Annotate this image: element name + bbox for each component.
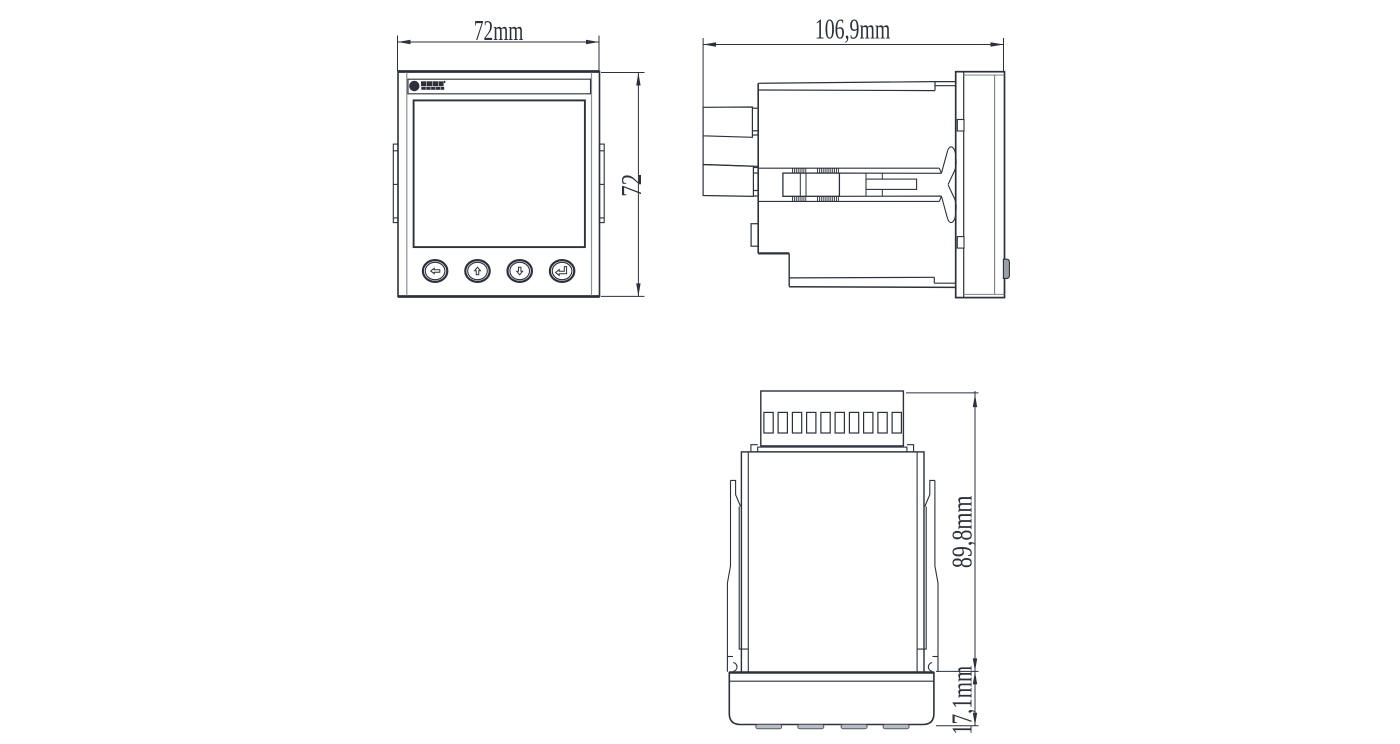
svg-text:106,9mm: 106,9mm bbox=[815, 14, 891, 46]
svg-text:72mm: 72mm bbox=[474, 15, 524, 47]
svg-text:72: 72 bbox=[616, 174, 648, 197]
svg-text:17,1mm: 17,1mm bbox=[946, 666, 978, 735]
svg-text:89,8mm: 89,8mm bbox=[946, 495, 978, 568]
